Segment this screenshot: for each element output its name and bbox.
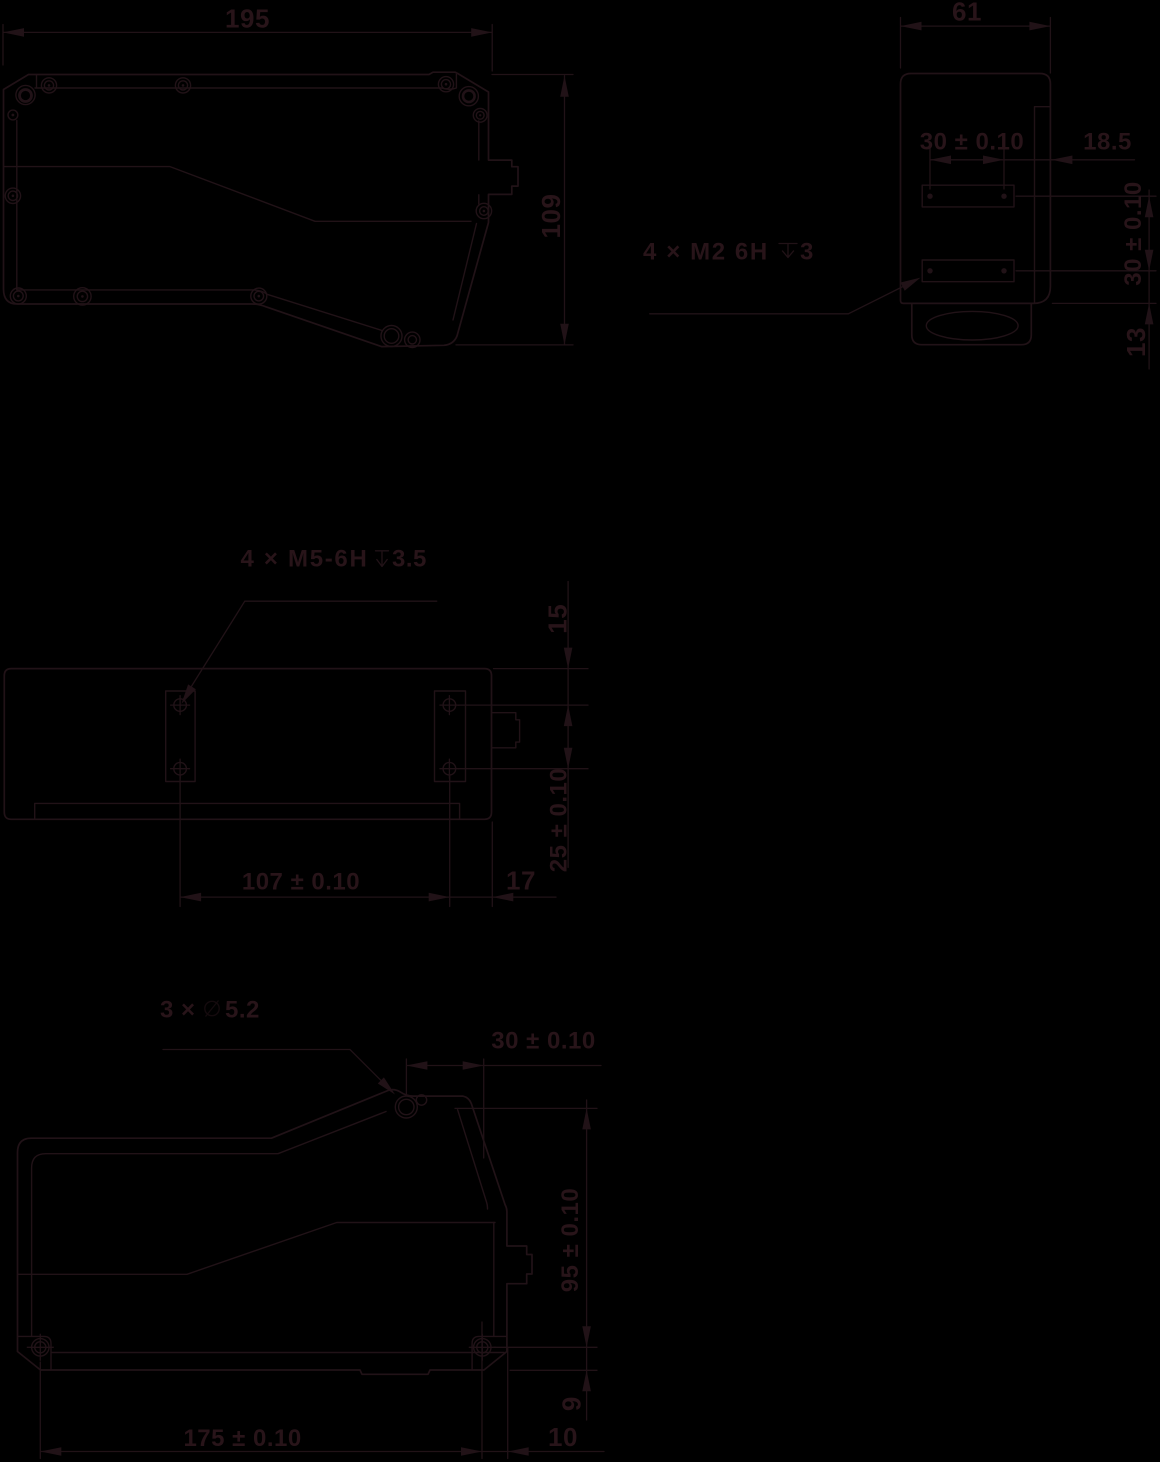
svg-text:4 × M5-6H: 4 × M5-6H xyxy=(241,546,369,573)
svg-text:17: 17 xyxy=(506,866,536,896)
svg-text:3: 3 xyxy=(800,239,814,266)
svg-text:18.5: 18.5 xyxy=(1083,129,1132,156)
svg-text:3 ×: 3 × xyxy=(160,997,196,1024)
svg-text:30 ± 0.10: 30 ± 0.10 xyxy=(920,129,1024,156)
svg-text:13: 13 xyxy=(1121,327,1151,357)
svg-text:30 ± 0.10: 30 ± 0.10 xyxy=(491,1028,595,1055)
svg-text:95 ± 0.10: 95 ± 0.10 xyxy=(557,1188,584,1292)
svg-text:30 ± 0.10: 30 ± 0.10 xyxy=(1120,181,1147,285)
svg-text:5.2: 5.2 xyxy=(225,997,260,1024)
svg-text:15: 15 xyxy=(543,604,573,634)
svg-text:9: 9 xyxy=(557,1396,587,1411)
svg-text:4 × M2 6H: 4 × M2 6H xyxy=(643,239,769,266)
svg-text:175 ± 0.10: 175 ± 0.10 xyxy=(183,1425,301,1452)
svg-text:195: 195 xyxy=(225,4,270,34)
svg-text:25 ± 0.10: 25 ± 0.10 xyxy=(546,768,573,872)
svg-text:109: 109 xyxy=(536,194,566,239)
svg-text:3.5: 3.5 xyxy=(392,546,427,573)
svg-text:10: 10 xyxy=(548,1422,578,1452)
svg-text:107 ± 0.10: 107 ± 0.10 xyxy=(242,869,360,896)
svg-text:61: 61 xyxy=(952,0,982,27)
